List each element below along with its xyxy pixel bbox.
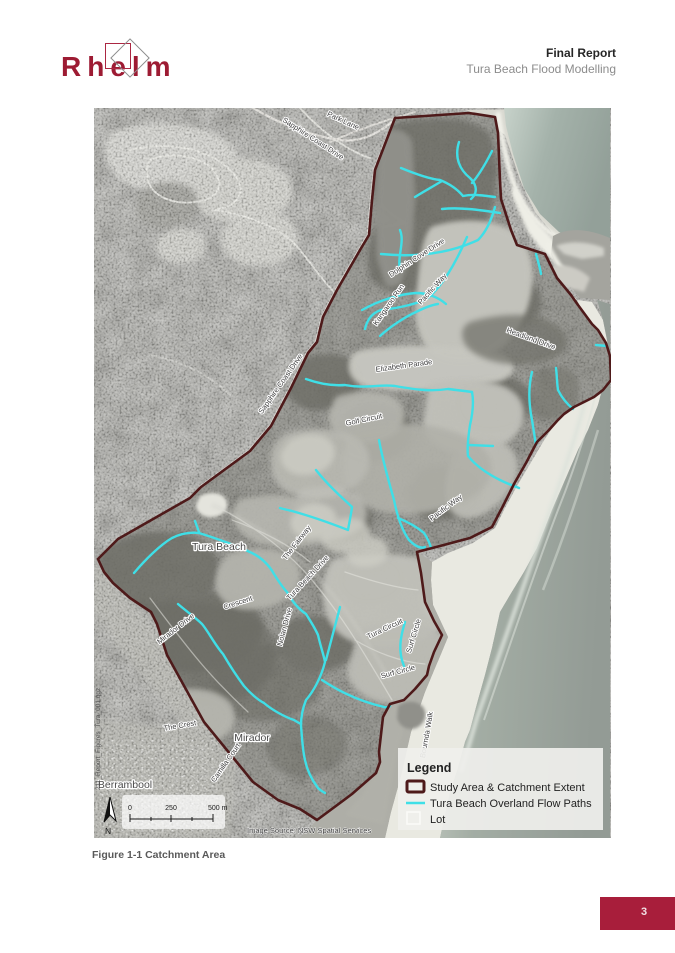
svg-text:Tura Beach Overland Flow Paths: Tura Beach Overland Flow Paths (430, 798, 592, 810)
svg-text:Legend: Legend (407, 761, 451, 775)
svg-text:211_Report_Figures_Tura_001.qg: 211_Report_Figures_Tura_001.qgz (95, 688, 102, 790)
svg-text:250: 250 (165, 805, 177, 812)
svg-text:Tura Beach: Tura Beach (192, 541, 246, 553)
svg-text:Mirador: Mirador (234, 732, 270, 744)
svg-text:Lot: Lot (430, 814, 445, 826)
svg-text:Study Area & Catchment Extent: Study Area & Catchment Extent (430, 782, 585, 794)
svg-text:0: 0 (128, 805, 132, 812)
svg-text:N: N (105, 826, 111, 836)
svg-text:Image Source: NSW Spatial Serv: Image Source: NSW Spatial Services (247, 826, 371, 835)
svg-text:Berrambool: Berrambool (98, 779, 152, 791)
svg-text:500 m: 500 m (208, 805, 228, 812)
